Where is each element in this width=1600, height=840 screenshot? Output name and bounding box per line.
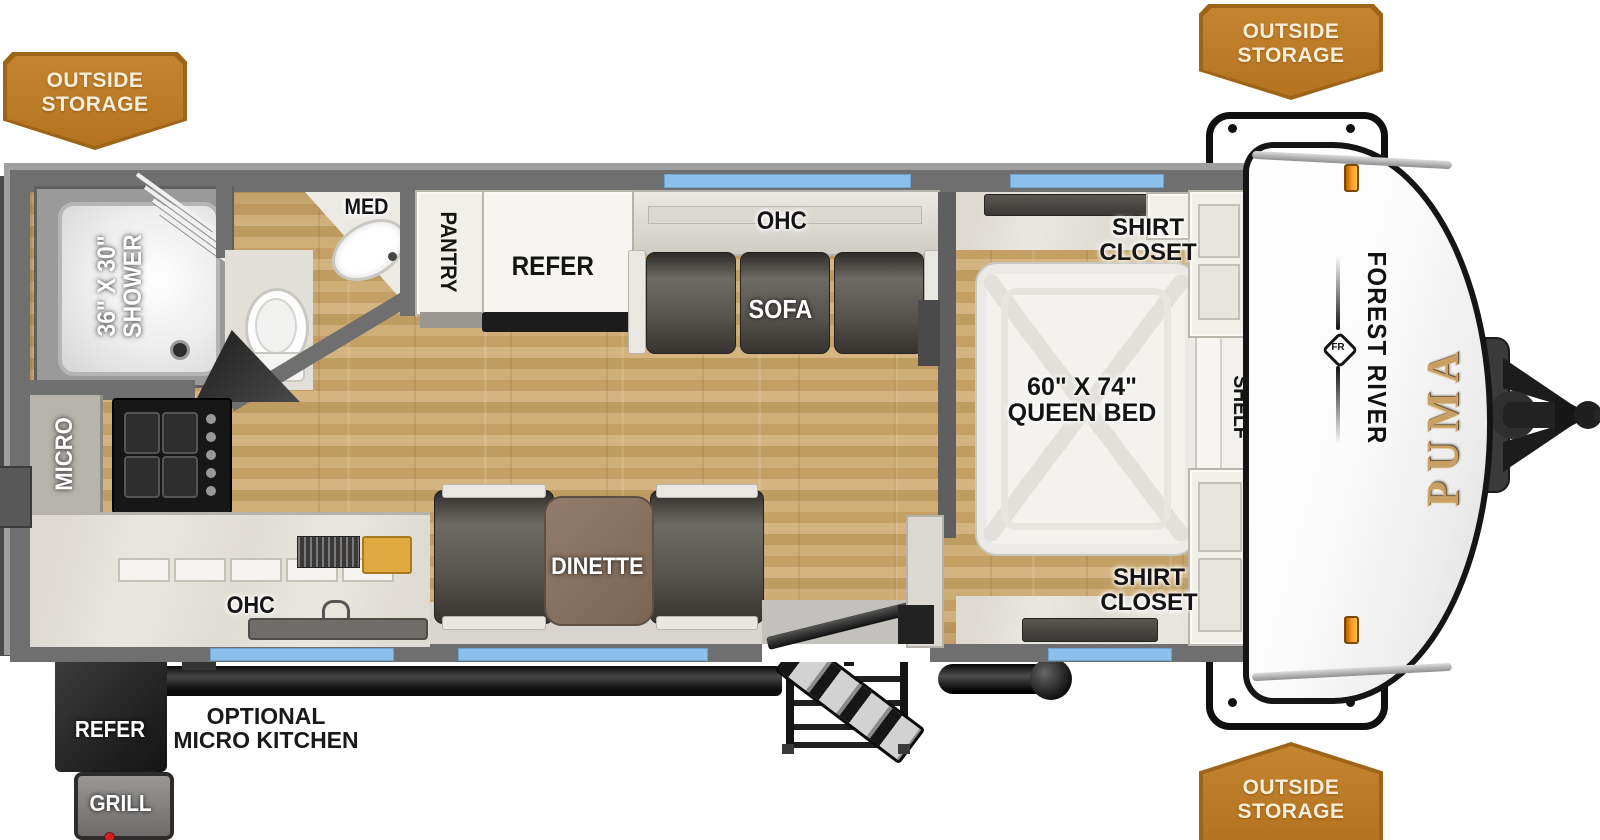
range-knob-icon [206,450,216,460]
entry-steps [782,652,912,756]
burner-grate-icon [124,412,160,454]
shower-drain-icon [170,340,190,360]
puma-wordmark: PUMA [1417,324,1469,526]
range-knob-icon [206,414,216,424]
sink-drain-icon [388,252,397,261]
window-bedroom-bottom [1048,648,1172,661]
window-sofa [664,174,911,188]
outside-storage-badge-bottom-right: OUTSIDE STORAGE [1199,742,1383,840]
sofa-ohc-label: OHC [742,208,822,234]
outside-storage-badge-top-left: OUTSIDE STORAGE [3,52,187,150]
cabinet-door [118,558,170,582]
dinette-bench-left [434,490,554,624]
bolt-icon [1228,124,1237,133]
exterior-utility-box [0,466,32,528]
optional-micro-kitchen-label: OPTIONAL MICRO KITCHEN [166,700,366,756]
toilet-seat [255,298,297,354]
window-bedroom-top [1010,174,1164,188]
kitchen-ohc-label: OHC [211,594,291,618]
burner-grate-icon [124,456,160,498]
shower-label: 36" X 30"SHOWER [92,217,148,355]
logo-accent-line [1336,256,1340,330]
sofa-cushion [646,252,736,354]
entry-door-opening [762,644,930,662]
forest-river-wordmark: FOREST RIVER [1361,228,1391,467]
bedroom-divider-wall [938,192,956,538]
bench-cap [442,616,546,630]
dinette-label: DINETTE [537,554,657,580]
kitchen-sink [248,618,428,640]
foot-bench [1022,618,1158,642]
sofa-cushion [834,252,924,354]
micro-label: MICRO [52,403,78,504]
awning-tube-cap [1030,658,1072,700]
closet-panel [1198,482,1242,552]
range-knob-icon [206,486,216,496]
headboard-shelf [984,194,1152,216]
window-kitchen [210,648,394,661]
bolt-icon [1228,698,1237,707]
bench-cap [442,484,546,498]
shirt-closet-top-label: SHIRT CLOSET [1087,214,1209,266]
bolt-icon [1346,124,1355,133]
bench-cap [656,484,758,498]
cutting-board [362,536,412,574]
marker-light-top [1344,164,1359,192]
bathroom-divider-wall [216,186,232,258]
faucet-icon [322,600,350,618]
exterior-grill-label: GRILL [74,790,166,816]
marker-light-bottom [1344,616,1359,644]
range-knob-icon [206,432,216,442]
logo-accent-line [1336,366,1340,444]
bedroom-wall-jog [918,300,940,366]
range-knob-icon [206,468,216,478]
cabinet-door [230,558,282,582]
med-cabinet-label: MED [331,196,401,218]
exterior-refer-label: REFER [60,716,160,742]
micro-kitchen-rail [128,666,782,696]
window-dinette [458,648,708,661]
counter-grate [297,536,360,568]
burner-grate-icon [162,456,198,498]
refer-label: REFER [498,252,608,280]
floorplan-diagram: REFER GRILL OPTIONAL MICRO KITCHEN [0,0,1600,840]
cabinet-door [174,558,226,582]
forest-river-logo-icon: FR [1322,332,1354,364]
sofa-armrest [628,250,646,354]
wardrobe-base [898,605,934,644]
bench-cap [656,616,758,630]
queen-bed-label: 60" X 74"QUEEN BED [1002,372,1162,428]
outside-storage-badge-top-right: OUTSIDE STORAGE [1199,4,1383,100]
shirt-closet-bottom-label: SHIRT CLOSET [1088,564,1210,616]
pantry-label: PANTRY [436,197,460,307]
closet-panel [1198,264,1240,320]
dinette-bench-right [650,490,764,624]
burner-grate-icon [162,412,198,454]
grill-knob-icon [104,832,115,840]
pantry-base [420,312,482,328]
exterior-refer-box [55,652,167,772]
sofa-label: SOFA [735,296,825,324]
under-refer-shelf [482,312,640,332]
